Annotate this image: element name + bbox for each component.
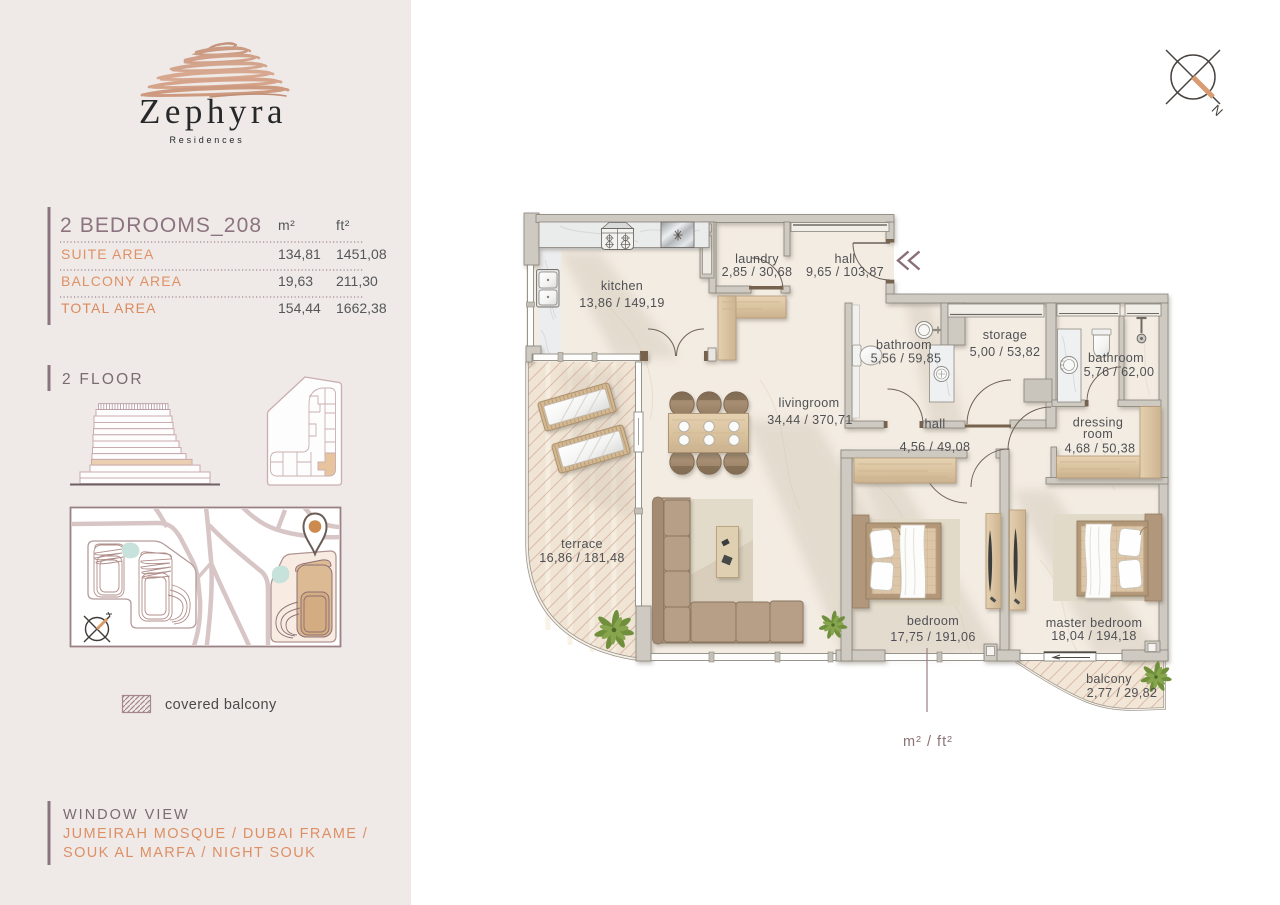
svg-text:17,75 / 191,06: 17,75 / 191,06 [890,630,975,644]
svg-text:hall: hall [834,252,855,266]
svg-text:SUITE AREA: SUITE AREA [61,246,154,262]
svg-text:m²: m² [278,217,295,233]
svg-text:bathroom: bathroom [876,338,932,352]
svg-text:hall: hall [924,417,945,431]
svg-text:1451,08: 1451,08 [336,246,387,262]
svg-text:Zephyra: Zephyra [139,92,287,131]
svg-text:JUMEIRAH MOSQUE / DUBAI FRAME: JUMEIRAH MOSQUE / DUBAI FRAME / [63,826,368,842]
svg-text:19,63: 19,63 [278,273,313,289]
svg-text:balcony: balcony [1086,672,1132,686]
svg-text:34,44 / 370,71: 34,44 / 370,71 [767,413,852,427]
svg-text:terrace: terrace [561,537,603,551]
svg-text:storage: storage [983,328,1027,342]
svg-text:room: room [1083,427,1113,441]
svg-text:211,30: 211,30 [336,273,378,289]
svg-text:2 BEDROOMS_208: 2 BEDROOMS_208 [60,214,262,237]
svg-text:covered balcony: covered balcony [165,697,277,713]
svg-text:BALCONY AREA: BALCONY AREA [61,273,182,289]
svg-text:5,56 / 59,85: 5,56 / 59,85 [871,352,942,366]
svg-text:Residences: Residences [169,135,244,145]
svg-text:2,85 / 30,68: 2,85 / 30,68 [722,265,793,279]
svg-text:laundry: laundry [735,252,779,266]
svg-text:WINDOW VIEW: WINDOW VIEW [63,807,190,823]
svg-text:kitchen: kitchen [601,279,643,293]
svg-text:9,65 / 103,87: 9,65 / 103,87 [806,265,884,279]
svg-text:4,56 / 49,08: 4,56 / 49,08 [900,440,971,454]
svg-text:SOUK AL MARFA / NIGHT SOUK: SOUK AL MARFA / NIGHT SOUK [63,845,316,861]
svg-text:5,00 / 53,82: 5,00 / 53,82 [970,345,1041,359]
svg-text:master bedroom: master bedroom [1046,616,1143,630]
svg-text:4,68 / 50,38: 4,68 / 50,38 [1065,442,1136,456]
svg-text:ft²: ft² [336,217,350,233]
svg-text:1662,38: 1662,38 [336,300,387,316]
svg-text:134,81: 134,81 [278,246,321,262]
svg-text:2 FLOOR: 2 FLOOR [62,371,144,388]
svg-text:16,86 / 181,48: 16,86 / 181,48 [539,551,624,565]
svg-text:13,86 / 149,19: 13,86 / 149,19 [579,296,664,310]
svg-text:bedroom: bedroom [907,614,959,628]
svg-text:154,44: 154,44 [278,300,321,316]
svg-text:bathroom: bathroom [1088,351,1144,365]
svg-text:m² / ft²: m² / ft² [903,734,953,750]
svg-text:TOTAL AREA: TOTAL AREA [61,300,157,316]
svg-text:2,77 / 29,82: 2,77 / 29,82 [1087,686,1158,700]
svg-text:5,76 / 62,00: 5,76 / 62,00 [1084,365,1155,379]
svg-text:18,04 / 194,18: 18,04 / 194,18 [1051,629,1136,643]
svg-text:livingroom: livingroom [779,396,840,410]
